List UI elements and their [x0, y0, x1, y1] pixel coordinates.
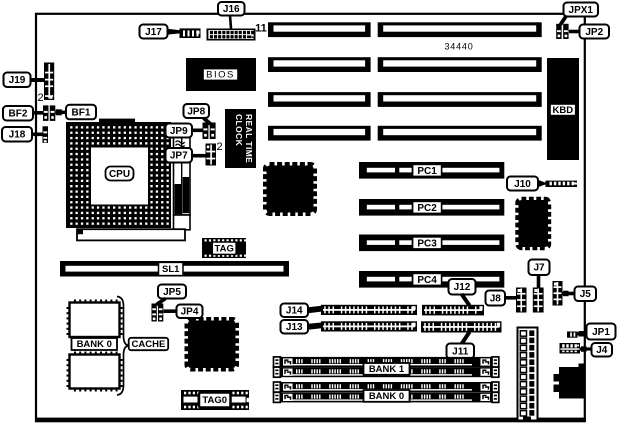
svg-text:KBD: KBD [553, 105, 574, 116]
svg-text:PC2: PC2 [417, 203, 437, 214]
svg-text:TAG: TAG [215, 243, 234, 254]
svg-text:JP8: JP8 [187, 106, 205, 117]
svg-text:J7: J7 [533, 263, 545, 274]
svg-text:JP7: JP7 [170, 151, 188, 162]
svg-text:J16: J16 [223, 4, 240, 15]
svg-text:BANK 0: BANK 0 [77, 339, 112, 350]
svg-text:BF1: BF1 [72, 107, 91, 118]
svg-text:PC1: PC1 [417, 166, 437, 177]
svg-text:JP1: JP1 [592, 327, 610, 338]
svg-text:PC3: PC3 [417, 238, 437, 249]
svg-text:J12: J12 [454, 282, 471, 293]
svg-text:J14: J14 [286, 306, 303, 317]
svg-text:BIOS: BIOS [206, 70, 235, 81]
svg-text:JP4: JP4 [181, 307, 199, 318]
svg-text:BF2: BF2 [9, 109, 28, 120]
svg-text:JPX1: JPX1 [569, 5, 594, 16]
svg-text:J13: J13 [286, 322, 303, 333]
svg-text:J8: J8 [490, 293, 502, 304]
svg-text:PC4: PC4 [417, 275, 437, 286]
svg-text:JP2: JP2 [585, 27, 603, 38]
svg-text:J19: J19 [9, 75, 26, 86]
svg-text:11: 11 [255, 23, 267, 35]
svg-text:CACHE: CACHE [132, 339, 166, 350]
svg-text:J18: J18 [9, 130, 26, 141]
svg-text:J5: J5 [580, 289, 592, 300]
svg-text:J10: J10 [514, 179, 531, 190]
svg-text:TAG0: TAG0 [202, 395, 227, 406]
svg-text:2: 2 [216, 141, 222, 153]
svg-text:J4: J4 [596, 345, 608, 356]
svg-text:BANK 1: BANK 1 [369, 364, 405, 375]
svg-text:34440: 34440 [444, 42, 473, 52]
svg-text:SL1: SL1 [162, 264, 180, 275]
svg-text:2: 2 [37, 92, 43, 104]
svg-text:BANK 0: BANK 0 [369, 391, 404, 402]
svg-text:J17: J17 [145, 27, 162, 38]
svg-text:JP5: JP5 [163, 287, 181, 298]
svg-text:J11: J11 [452, 346, 469, 357]
svg-text:CPU: CPU [109, 169, 130, 180]
svg-text:JP9: JP9 [170, 126, 188, 137]
